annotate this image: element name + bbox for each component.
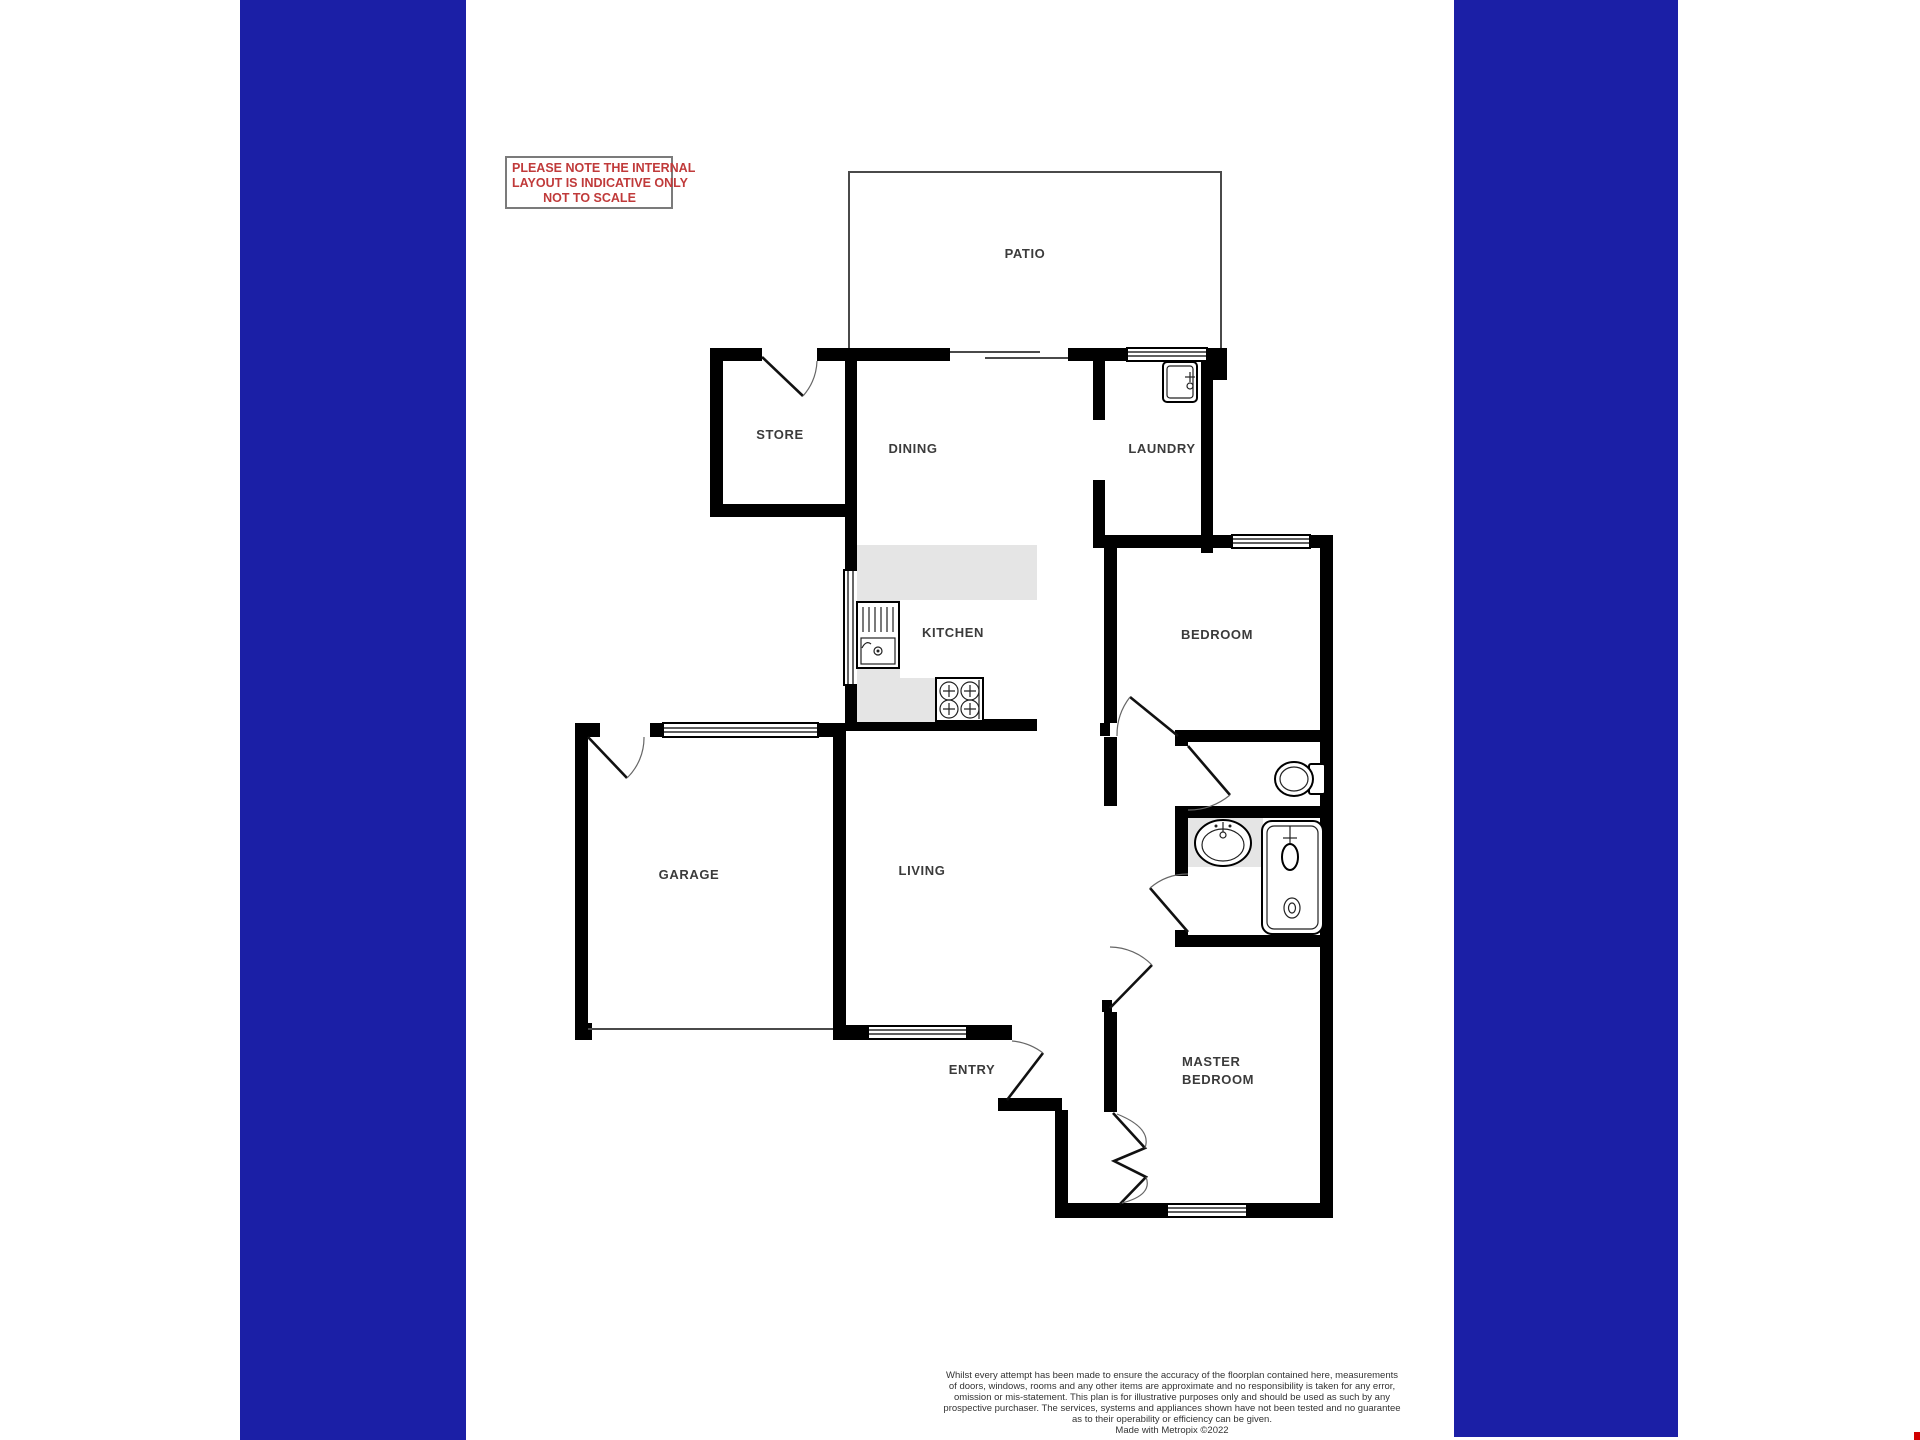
wall bbox=[817, 348, 857, 361]
kitchen-counter bbox=[857, 678, 935, 722]
room-label-patio: PATIO bbox=[1005, 246, 1046, 261]
master-door-swing bbox=[1110, 947, 1152, 1008]
disclaimer-line-3: omission or mis-statement. This plan is … bbox=[920, 1392, 1424, 1403]
wall bbox=[1247, 1203, 1333, 1218]
wall bbox=[710, 504, 845, 517]
wall bbox=[1175, 806, 1188, 876]
bathtub-icon bbox=[1262, 821, 1323, 934]
room-label-dining: DINING bbox=[888, 441, 937, 456]
wall bbox=[1175, 935, 1320, 947]
wall bbox=[833, 731, 846, 1040]
basin-icon bbox=[1195, 820, 1251, 866]
bathroom-door-swing bbox=[1150, 874, 1188, 932]
room-label-laundry: LAUNDRY bbox=[1128, 441, 1195, 456]
entry-door-swing bbox=[1007, 1041, 1043, 1100]
bedroom-door-swing bbox=[1117, 697, 1178, 736]
store-door-swing bbox=[762, 357, 817, 396]
wall bbox=[967, 1025, 1012, 1040]
disclaimer-line-4: prospective purchaser. The services, sys… bbox=[920, 1403, 1424, 1414]
wall bbox=[833, 1025, 868, 1040]
wall bbox=[1117, 535, 1232, 548]
wall bbox=[1104, 535, 1117, 723]
wc-door-swing bbox=[1188, 746, 1230, 810]
wall bbox=[1175, 730, 1188, 746]
disclaimer: Whilst every attempt has been made to en… bbox=[920, 1370, 1424, 1436]
wall bbox=[710, 348, 723, 517]
kitchen-sink-icon bbox=[857, 602, 899, 668]
wall bbox=[845, 361, 857, 570]
living-window-icon bbox=[868, 1026, 967, 1039]
wall bbox=[1100, 723, 1110, 736]
wall bbox=[1178, 730, 1320, 742]
patio-outline bbox=[849, 172, 1221, 352]
room-label-master-2: BEDROOM bbox=[1182, 1072, 1254, 1087]
bedroom-window-icon bbox=[1232, 535, 1310, 548]
wall bbox=[1055, 1203, 1167, 1218]
room-label-entry: ENTRY bbox=[949, 1062, 996, 1077]
wall bbox=[650, 723, 663, 737]
corner-red-dot bbox=[1914, 1432, 1920, 1440]
disclaimer-line-2: of doors, windows, rooms and any other i… bbox=[920, 1381, 1424, 1392]
floor-plan: PATIO STORE DINING LAUNDRY KITCHEN BEDRO… bbox=[0, 0, 1920, 1440]
disclaimer-line-1: Whilst every attempt has been made to en… bbox=[920, 1370, 1424, 1381]
wall bbox=[1093, 361, 1105, 420]
toilet-icon bbox=[1275, 762, 1325, 796]
wall bbox=[1104, 1012, 1117, 1112]
closet-bifold-doors bbox=[1113, 1113, 1147, 1204]
room-label-bedroom: BEDROOM bbox=[1181, 627, 1253, 642]
room-label-store: STORE bbox=[756, 427, 804, 442]
laundry-window-icon bbox=[1127, 348, 1207, 361]
wall bbox=[1201, 348, 1213, 553]
garage-window-icon bbox=[663, 723, 818, 737]
room-label-master-1: MASTER bbox=[1182, 1054, 1241, 1069]
thin-walls bbox=[588, 352, 1068, 1029]
laundry-sink-icon bbox=[1163, 362, 1197, 402]
metropix-credit: Made with Metropix ©2022 bbox=[920, 1425, 1424, 1436]
wall bbox=[575, 723, 600, 737]
garage-door-swing bbox=[588, 737, 644, 778]
disclaimer-line-5: as to their operability or efficiency ca… bbox=[920, 1414, 1424, 1425]
master-window-icon bbox=[1167, 1204, 1247, 1217]
wall bbox=[1093, 480, 1105, 535]
wall bbox=[1068, 348, 1127, 361]
doors bbox=[588, 357, 1230, 1204]
wall bbox=[575, 1023, 592, 1040]
room-label-kitchen: KITCHEN bbox=[922, 625, 984, 640]
kitchen-counter bbox=[857, 545, 1037, 600]
wall bbox=[1104, 737, 1117, 806]
hob-icon bbox=[936, 678, 983, 721]
wall bbox=[575, 723, 588, 1040]
room-label-garage: GARAGE bbox=[659, 867, 720, 882]
bathroom-fixtures bbox=[1188, 818, 1323, 934]
room-label-living: LIVING bbox=[899, 863, 946, 878]
wall bbox=[1055, 1110, 1068, 1218]
page: PLEASE NOTE THE INTERNAL LAYOUT IS INDIC… bbox=[0, 0, 1920, 1440]
wall bbox=[857, 348, 950, 361]
kitchen-window-icon bbox=[844, 570, 858, 685]
